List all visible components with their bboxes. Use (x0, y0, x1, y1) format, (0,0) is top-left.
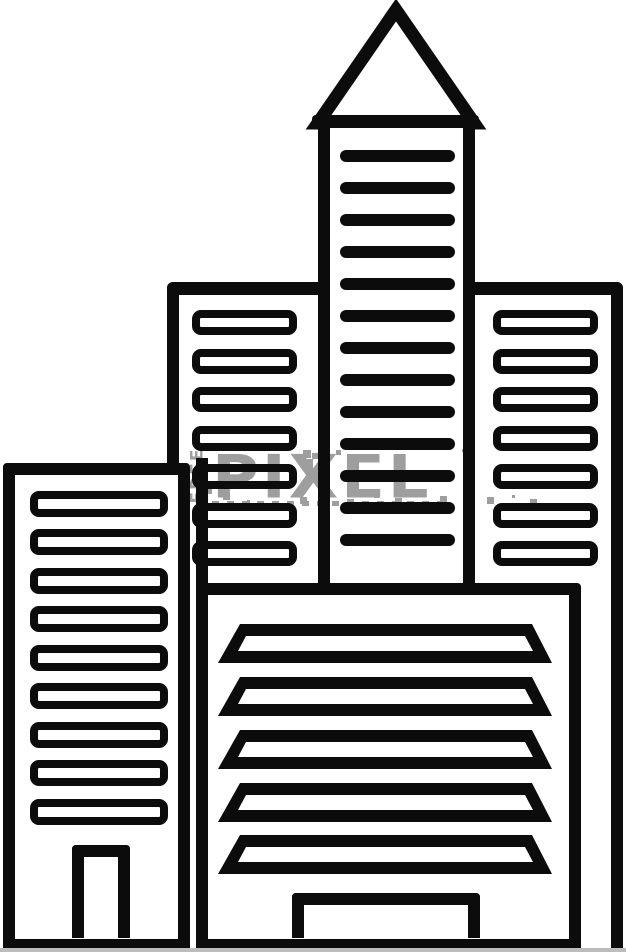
window-bar (340, 502, 455, 514)
window-bar (340, 342, 455, 354)
window-bar (340, 182, 455, 194)
window (493, 541, 598, 566)
window (192, 387, 297, 412)
window (30, 491, 168, 517)
left-building-door (72, 845, 130, 938)
louver-window-opening (218, 835, 552, 874)
window-bar (340, 374, 455, 386)
louver-window-opening (218, 624, 552, 663)
window (30, 645, 168, 671)
window-bar (340, 278, 455, 290)
window-bar (340, 310, 455, 322)
window (30, 722, 168, 748)
window (30, 529, 168, 555)
window (493, 464, 598, 489)
tower-roof-triangle (318, 10, 474, 123)
louver-window (218, 835, 552, 874)
window (493, 426, 598, 451)
window (493, 387, 598, 412)
window (30, 568, 168, 594)
window (192, 426, 297, 451)
window-bar (340, 438, 455, 450)
window (30, 683, 168, 709)
front-building-door (292, 893, 480, 938)
image-bottom-edge-strip (0, 948, 626, 952)
window-bar (340, 534, 455, 546)
window (30, 606, 168, 632)
window (192, 349, 297, 374)
louver-window-opening (218, 677, 552, 716)
window (192, 310, 297, 335)
window-bar (340, 214, 455, 226)
louver-window (218, 783, 552, 822)
louver-window (218, 730, 552, 769)
louver-window-opening (218, 783, 552, 822)
window (493, 310, 598, 335)
louver-window (218, 624, 552, 663)
window (30, 799, 168, 825)
window-bar (340, 470, 455, 482)
louver-window-opening (218, 730, 552, 769)
window-bar (340, 246, 455, 258)
window (493, 349, 598, 374)
clipart-city-buildings: FREE PIXEL (0, 0, 626, 952)
window-bar (340, 150, 455, 162)
window-bar (340, 406, 455, 418)
louver-window (218, 677, 552, 716)
window (493, 503, 598, 528)
tower-roof (300, 0, 492, 130)
window (30, 760, 168, 786)
